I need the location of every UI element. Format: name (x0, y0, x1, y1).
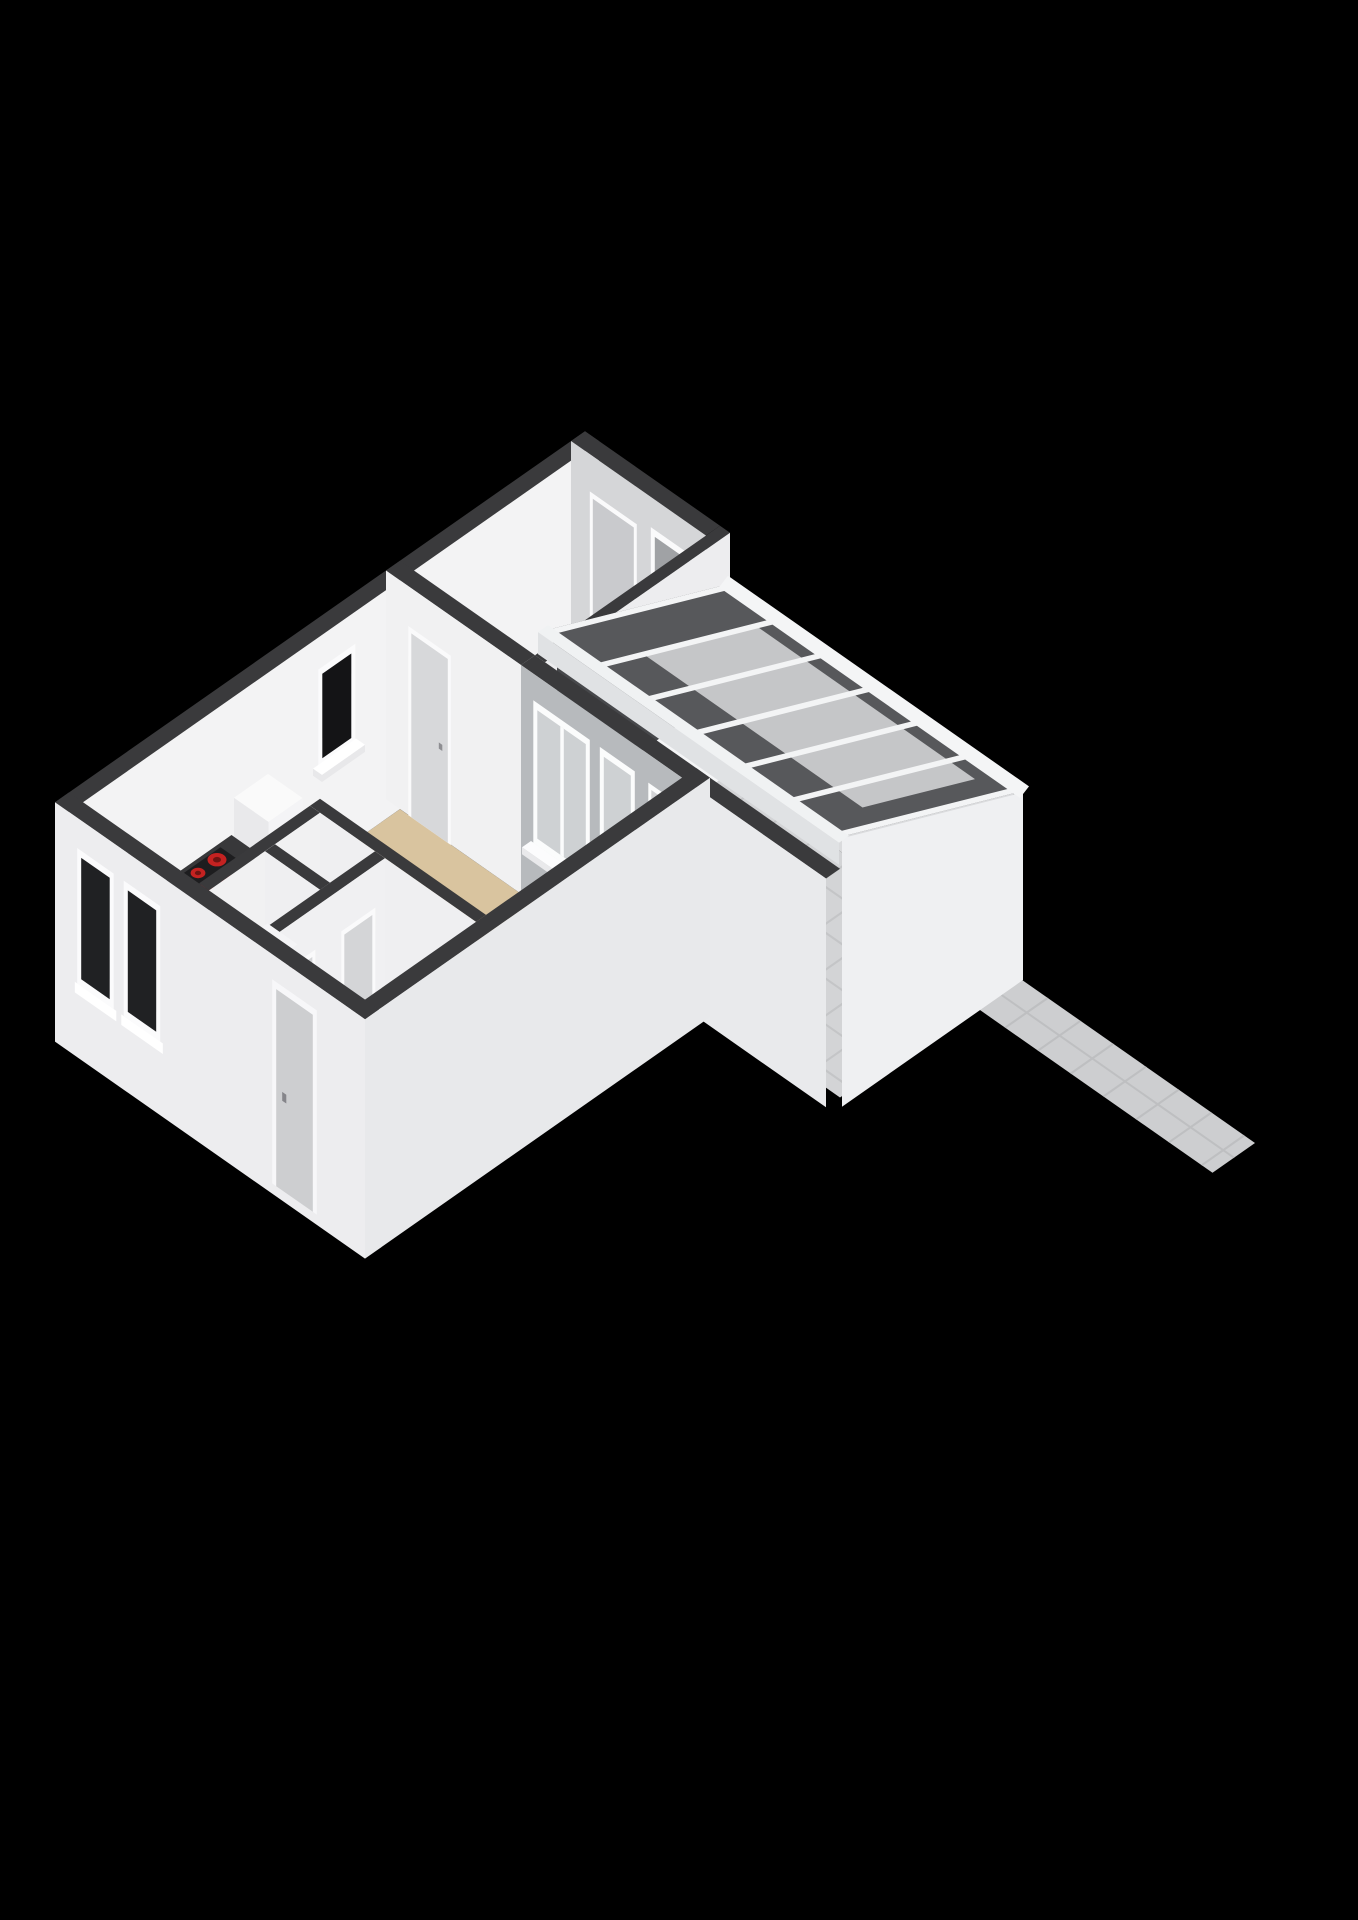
front-door (276, 989, 313, 1212)
hall-living-door (411, 633, 448, 843)
floorplan-stage (0, 0, 1358, 1920)
living-window1-mullion (560, 726, 564, 857)
burner-3-core (195, 871, 201, 875)
facade-window1-glass (81, 858, 110, 999)
floorplan-3d-render (0, 0, 1358, 1920)
burner-1-core (213, 857, 221, 863)
facade-window2-glass (128, 890, 156, 1031)
